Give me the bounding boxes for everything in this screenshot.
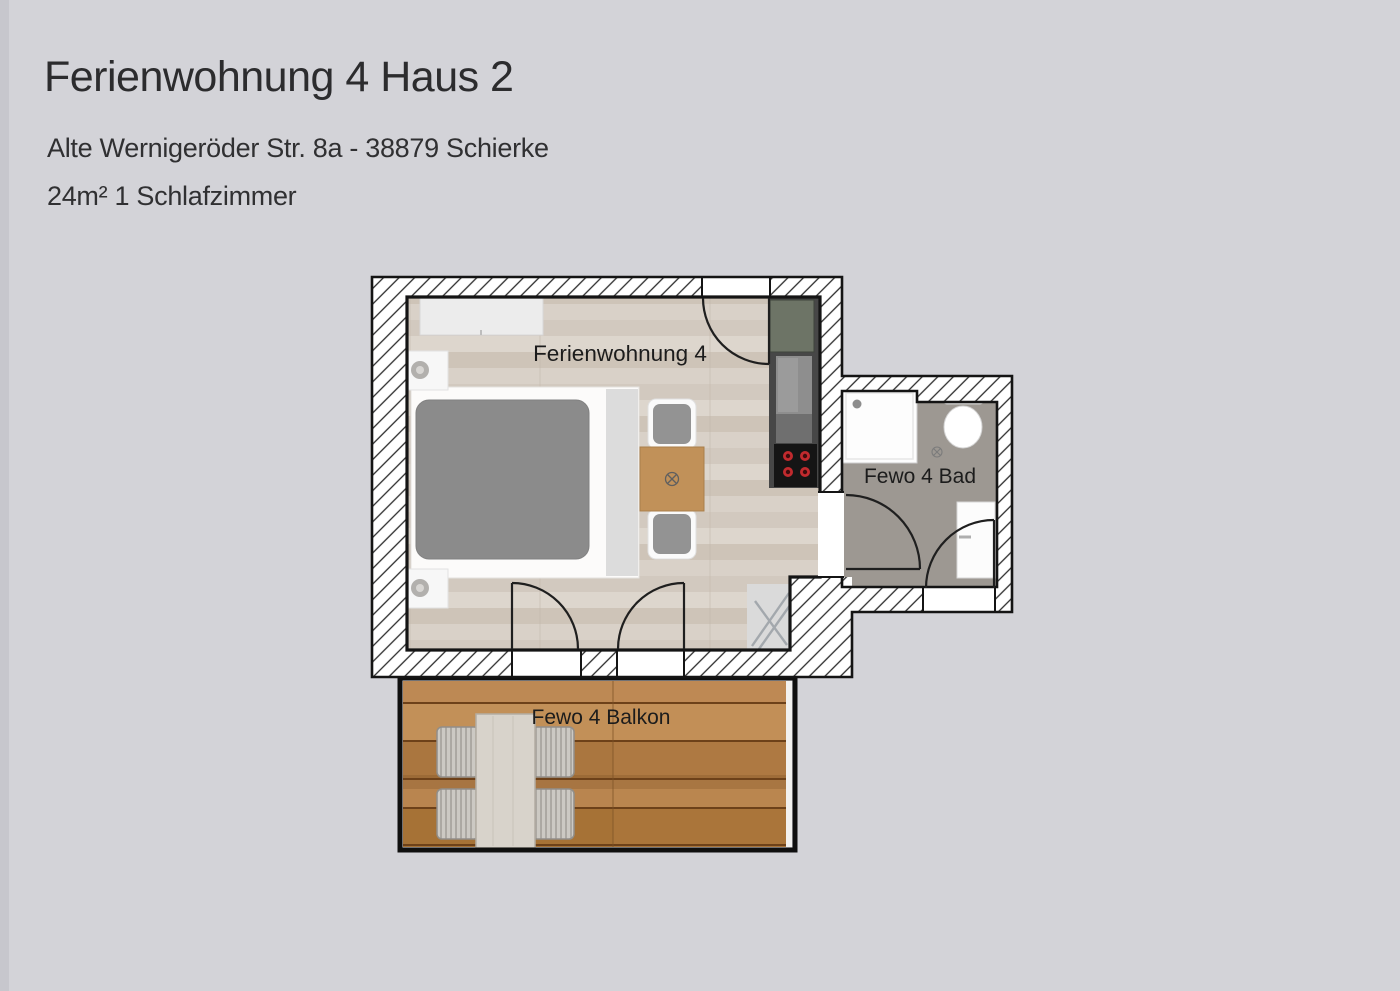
kitchen-worktop [776, 414, 812, 443]
wall-bath-top [820, 376, 1012, 391]
lamp-center [416, 584, 424, 592]
kitchen-fridge-top [770, 300, 814, 352]
deck-edge-gap [786, 681, 792, 847]
wall-left [372, 277, 407, 676]
lamp-center [416, 366, 424, 374]
living-room-label: Ferienwohnung 4 [533, 341, 707, 366]
floorplan-svg: Ferienwohnung 4 Fewo 4 Bad Fewo 4 Balkon [0, 0, 1400, 991]
wicker-chair [437, 789, 479, 839]
wicker-chair [437, 727, 479, 777]
nightstand-top [407, 351, 448, 390]
nightstand-bottom [407, 569, 448, 608]
stove [774, 444, 817, 487]
mattress [416, 400, 589, 559]
bath-doorway-opening [818, 492, 844, 577]
wall-bath-right [997, 376, 1012, 612]
balcony-door-opening-right [617, 650, 684, 677]
balcony-table [476, 714, 535, 848]
balcony-door-opening-left [512, 650, 581, 677]
utility-marker [747, 584, 793, 650]
washbasin-vanity [957, 502, 995, 578]
dining-table [640, 447, 704, 511]
bathroom-label: Fewo 4 Bad [864, 465, 976, 488]
dining-chair-bottom [648, 509, 696, 559]
balcony [400, 678, 795, 850]
balcony-label: Fewo 4 Balkon [532, 706, 671, 729]
bed-footboard [606, 389, 638, 576]
kitchen-sink-panel [778, 358, 798, 412]
dining-chair-top [648, 399, 696, 449]
wall-top [372, 277, 842, 297]
wicker-chair [532, 789, 574, 839]
bath-window-opening [923, 587, 995, 612]
kitchenette [769, 298, 822, 488]
wicker-chair [532, 727, 574, 777]
drain-icon [853, 400, 862, 409]
bed [411, 387, 639, 578]
wall-bottom [372, 650, 852, 677]
shower [842, 389, 917, 463]
wardrobe [420, 298, 543, 335]
entrance-opening [702, 277, 770, 297]
